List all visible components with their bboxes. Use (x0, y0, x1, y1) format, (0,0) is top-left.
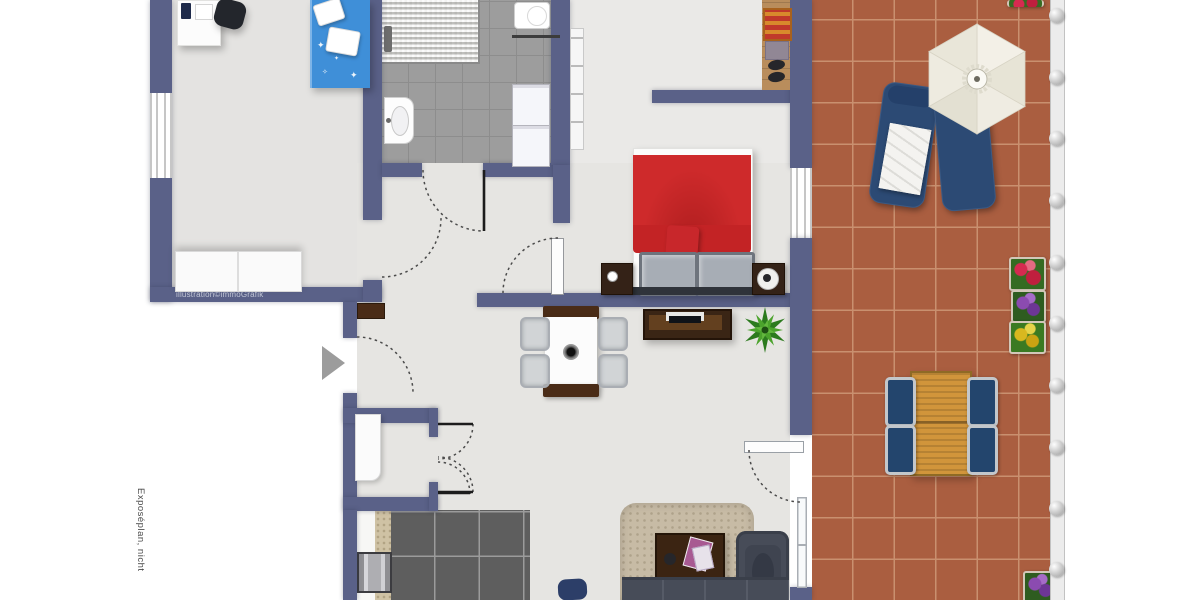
door-arc-kids-room (382, 218, 441, 277)
door-arc-bathroom (423, 170, 484, 231)
door-arc-pantry-top (438, 424, 473, 459)
door-arc-entrance (357, 337, 413, 393)
plant-icon (743, 307, 788, 353)
door-arc-kitchen (438, 462, 470, 494)
floor-plan: illustration©immoGrafik ✦ ✦ ✧ ✧ ✦ ✦ (0, 0, 1200, 600)
door-arc-pantry-bottom (438, 457, 473, 492)
door-arc-terrace (749, 450, 801, 502)
door-arc-bedroom (503, 238, 558, 293)
exposeplan-note: Exposéplan, nicht (135, 488, 146, 572)
overlay-graphics (0, 0, 1200, 600)
parasol-icon (929, 24, 1025, 134)
